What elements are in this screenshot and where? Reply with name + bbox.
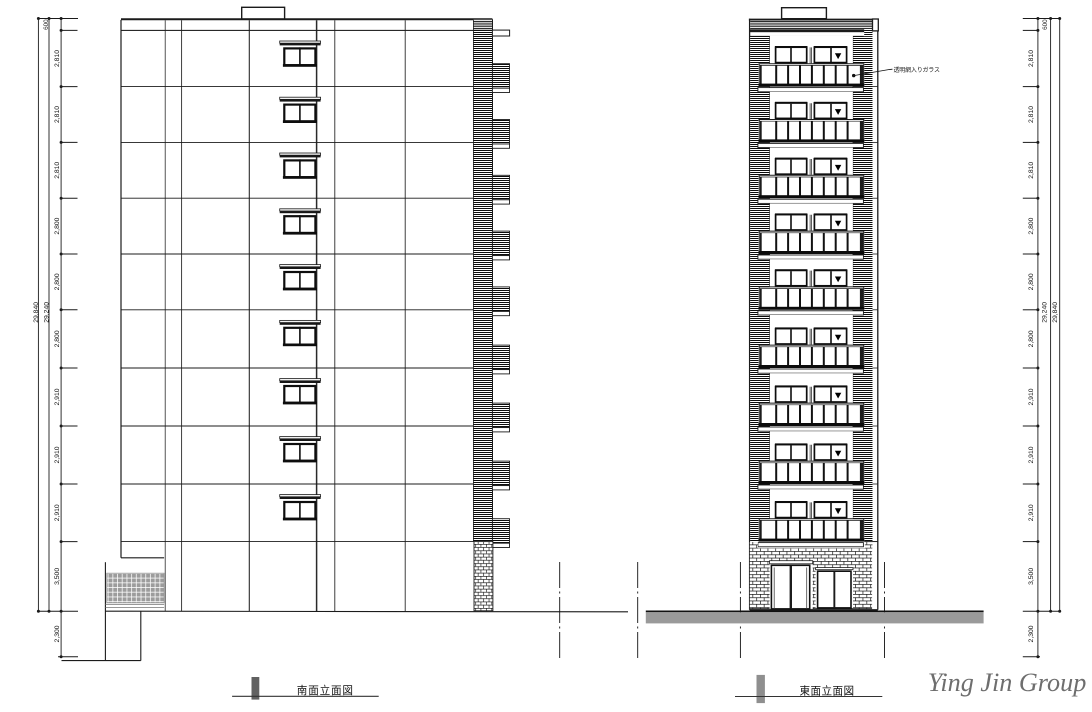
svg-text:2,800: 2,800 (54, 330, 61, 347)
svg-text:2,910: 2,910 (54, 388, 61, 405)
svg-text:2,800: 2,800 (1028, 330, 1035, 347)
svg-text:600: 600 (1042, 19, 1049, 30)
svg-text:2,800: 2,800 (1028, 217, 1035, 234)
svg-text:2,810: 2,810 (54, 162, 61, 179)
svg-text:600: 600 (43, 19, 50, 30)
svg-text:2,910: 2,910 (1028, 504, 1035, 521)
svg-text:東面立面図: 東面立面図 (800, 684, 855, 697)
svg-text:3,500: 3,500 (1028, 568, 1035, 585)
svg-text:2,800: 2,800 (54, 273, 61, 290)
svg-text:2,810: 2,810 (1028, 106, 1035, 123)
svg-text:透明網入りガラス: 透明網入りガラス (894, 66, 940, 74)
svg-text:Ying Jin Group: Ying Jin Group (928, 668, 1087, 697)
svg-text:2,910: 2,910 (54, 446, 61, 463)
svg-text:29,840: 29,840 (1052, 302, 1059, 323)
svg-text:29,840: 29,840 (33, 302, 40, 323)
svg-text:2,810: 2,810 (54, 106, 61, 123)
svg-text:2,300: 2,300 (54, 625, 61, 642)
svg-text:2,910: 2,910 (1028, 388, 1035, 405)
svg-text:2,800: 2,800 (54, 217, 61, 234)
svg-text:2,800: 2,800 (1028, 273, 1035, 290)
svg-text:29,240: 29,240 (44, 302, 51, 323)
svg-text:2,300: 2,300 (1028, 625, 1035, 642)
svg-text:2,910: 2,910 (54, 504, 61, 521)
svg-text:2,910: 2,910 (1028, 446, 1035, 463)
svg-text:3,500: 3,500 (54, 568, 61, 585)
svg-text:2,810: 2,810 (1028, 50, 1035, 67)
svg-text:29,240: 29,240 (1042, 302, 1049, 323)
svg-text:2,810: 2,810 (54, 50, 61, 67)
svg-text:南面立面図: 南面立面図 (297, 684, 354, 697)
svg-text:2,810: 2,810 (1028, 162, 1035, 179)
